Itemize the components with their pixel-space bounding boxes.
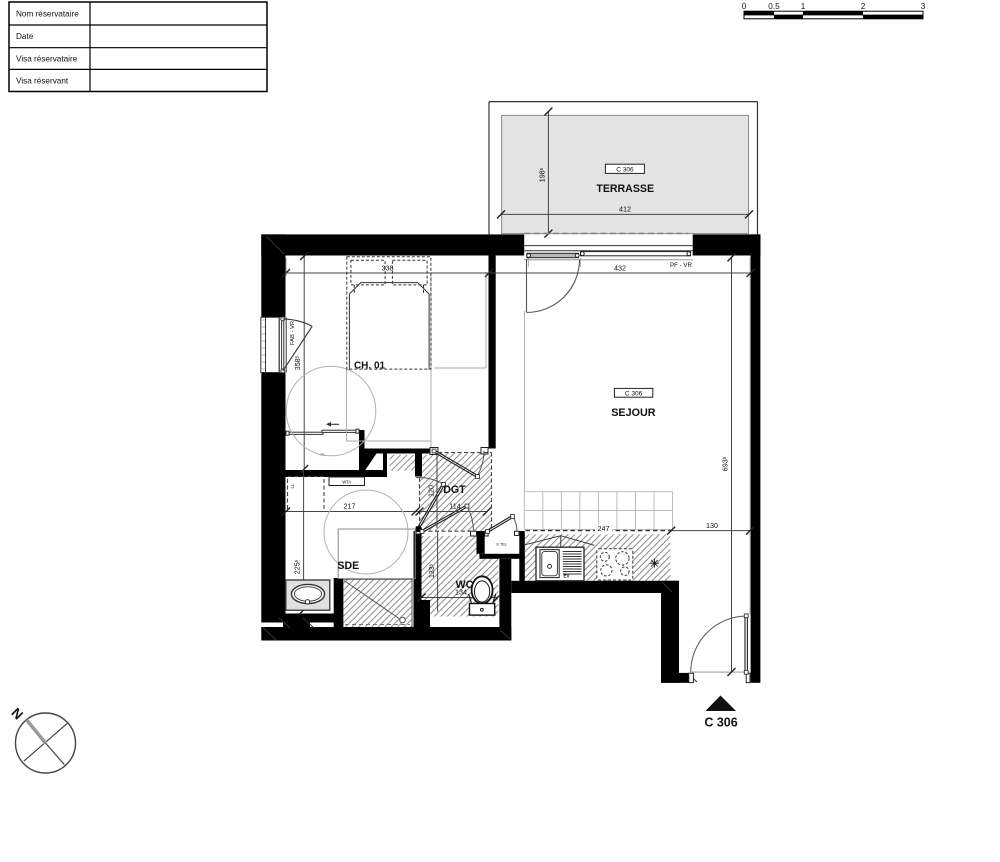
- svg-text:SDE: SDE: [337, 560, 359, 572]
- svg-text:C 306: C 306: [625, 390, 643, 397]
- svg-text:Nom réservataire: Nom réservataire: [16, 10, 79, 19]
- svg-text:432: 432: [614, 263, 626, 272]
- svg-text:CH. 01: CH. 01: [354, 361, 386, 372]
- svg-text:PF - VR: PF - VR: [670, 262, 693, 269]
- svg-text:Date: Date: [16, 32, 34, 41]
- svg-text:SEJOUR: SEJOUR: [611, 407, 656, 419]
- svg-text:412: 412: [619, 205, 631, 214]
- svg-text:DGT: DGT: [443, 484, 466, 496]
- svg-text:2: 2: [861, 2, 866, 11]
- svg-text:120: 120: [429, 485, 436, 497]
- svg-text:C 306: C 306: [704, 716, 737, 730]
- svg-text:EV: EV: [563, 574, 569, 579]
- svg-text:247: 247: [598, 524, 610, 533]
- svg-text:0: 0: [742, 2, 747, 11]
- svg-text:E TEL: E TEL: [497, 543, 507, 547]
- svg-text:338: 338: [382, 263, 394, 272]
- svg-text:217: 217: [344, 502, 356, 511]
- svg-text:130: 130: [706, 521, 718, 530]
- svg-text:Visa réservataire: Visa réservataire: [16, 54, 78, 63]
- svg-text:C 306: C 306: [616, 167, 634, 174]
- svg-text:WC: WC: [456, 579, 474, 591]
- svg-text:WTA: WTA: [342, 479, 351, 484]
- svg-text:Visa réservant: Visa réservant: [16, 77, 69, 86]
- svg-text:LL: LL: [290, 483, 295, 489]
- svg-text:114: 114: [449, 502, 460, 511]
- svg-text:TERRASSE: TERRASSE: [596, 183, 654, 195]
- svg-text:3: 3: [921, 2, 926, 11]
- svg-text:FAB - VR: FAB - VR: [290, 321, 296, 345]
- svg-text:0.5: 0.5: [768, 2, 780, 11]
- svg-text:1: 1: [801, 2, 806, 11]
